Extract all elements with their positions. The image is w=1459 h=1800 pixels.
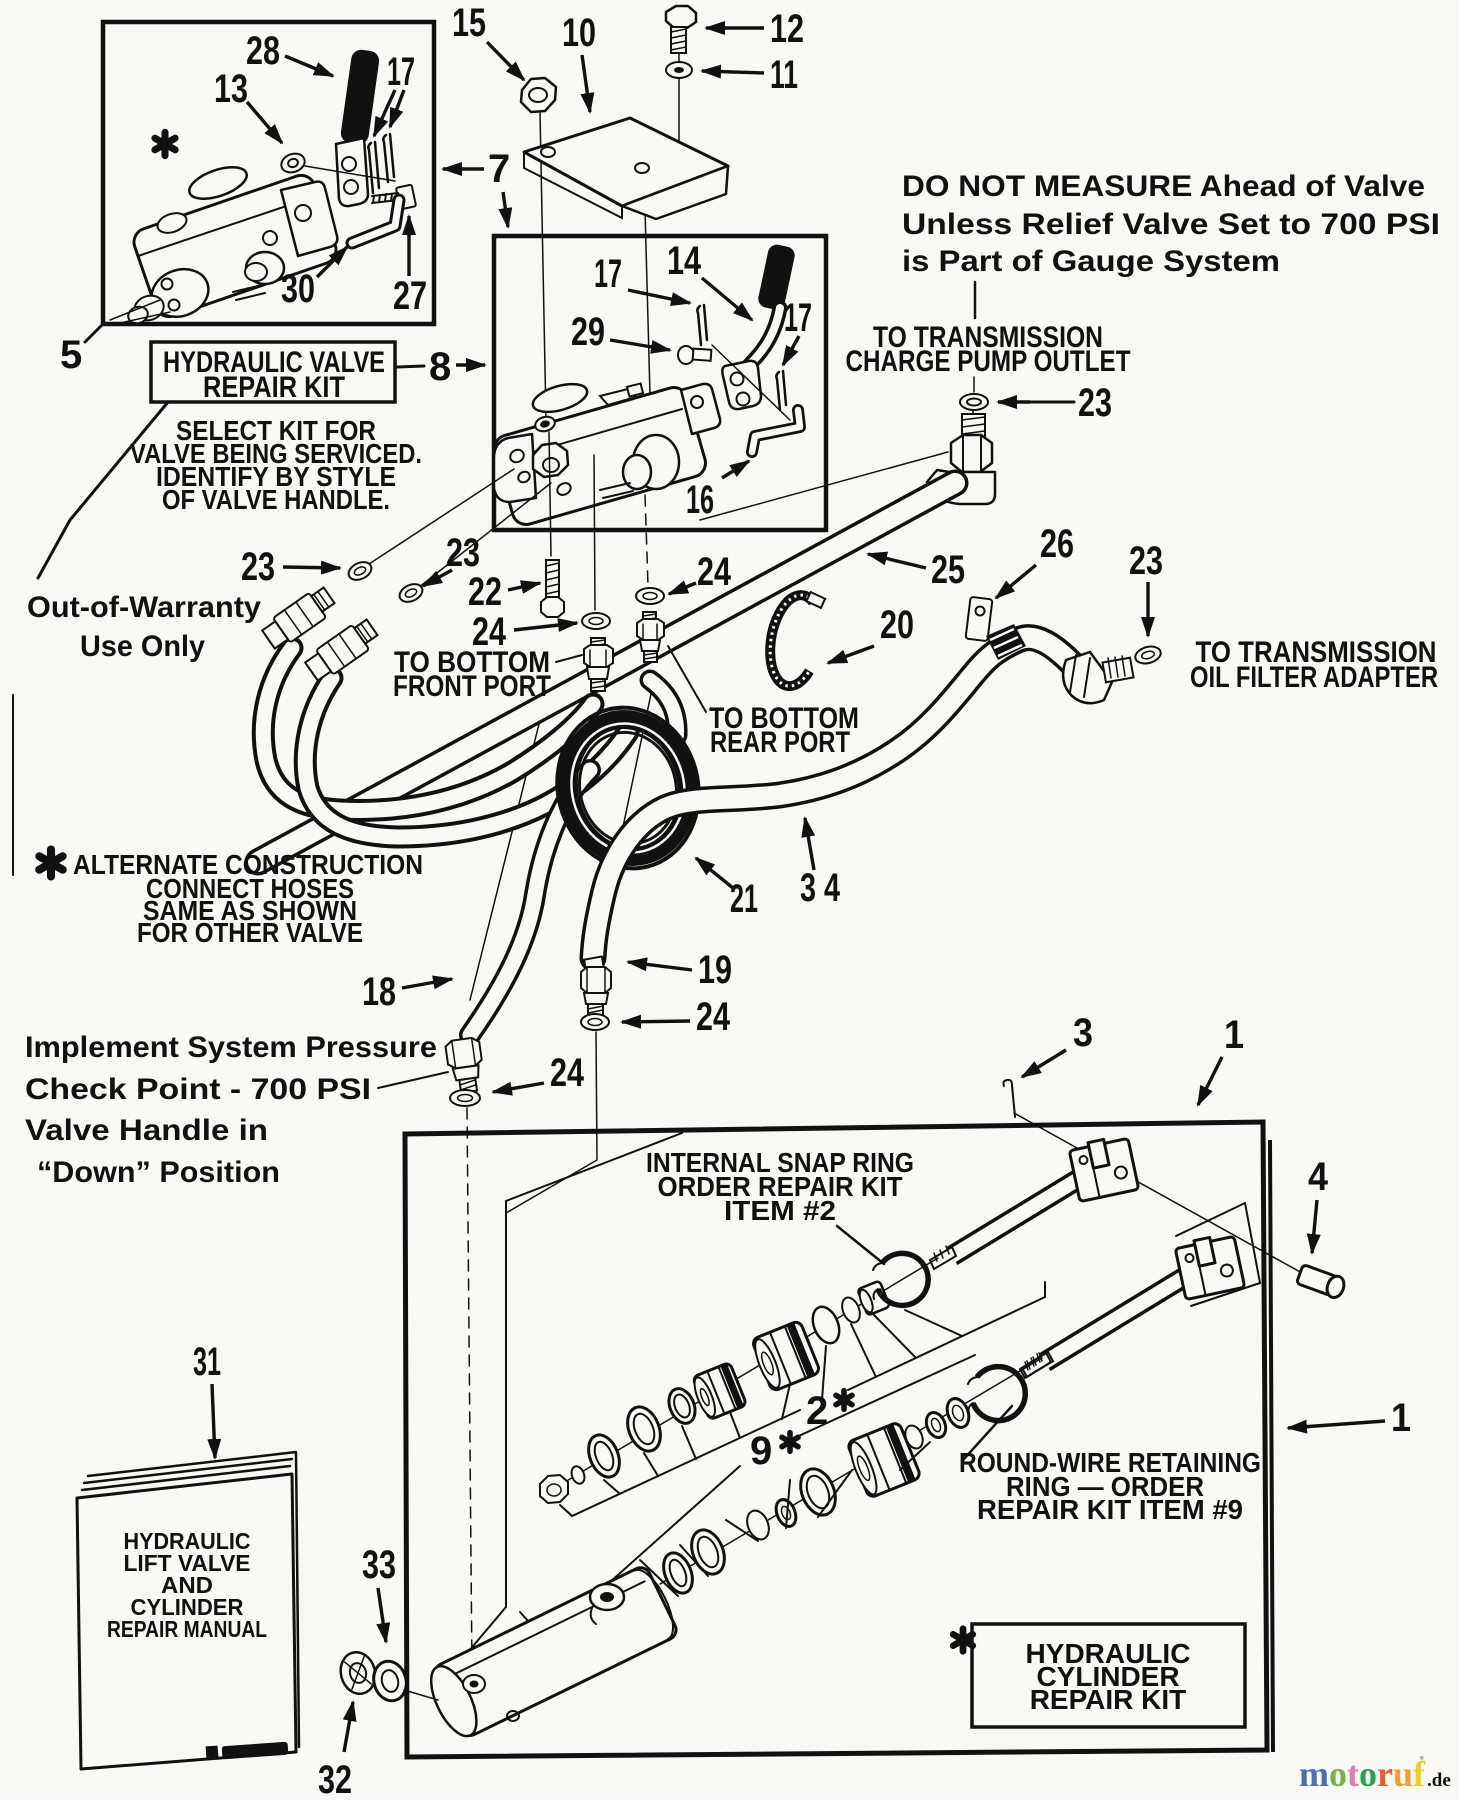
svg-text:29: 29 xyxy=(571,310,605,354)
svg-text:17: 17 xyxy=(387,50,415,94)
svg-text:23: 23 xyxy=(1078,381,1112,425)
svg-text:CHARGE PUMP OUTLET: CHARGE PUMP OUTLET xyxy=(846,345,1131,378)
svg-text:15: 15 xyxy=(452,1,486,45)
svg-text:motoruf: motoruf xyxy=(1299,1754,1426,1794)
svg-text:3 4: 3 4 xyxy=(800,866,841,910)
svg-text:17: 17 xyxy=(594,252,622,296)
svg-text:26: 26 xyxy=(1040,522,1074,566)
svg-text:33: 33 xyxy=(362,1543,396,1587)
svg-text:32: 32 xyxy=(318,1758,352,1800)
svg-text:OIL FILTER ADAPTER: OIL FILTER ADAPTER xyxy=(1190,661,1438,694)
svg-text:3: 3 xyxy=(1073,1011,1093,1055)
svg-text:5: 5 xyxy=(60,333,82,377)
svg-text:19: 19 xyxy=(698,948,732,992)
svg-text:8: 8 xyxy=(429,345,451,389)
svg-text:REPAIR KIT ITEM #9: REPAIR KIT ITEM #9 xyxy=(977,1494,1243,1525)
svg-text:14: 14 xyxy=(667,239,702,283)
svg-text:12: 12 xyxy=(770,7,804,51)
svg-text:21: 21 xyxy=(730,877,758,921)
svg-text:9: 9 xyxy=(750,1429,772,1473)
svg-text:23: 23 xyxy=(1129,539,1163,583)
svg-text:31: 31 xyxy=(193,1340,221,1384)
svg-text:DO NOT MEASURE Ahead of Valve: DO NOT MEASURE Ahead of Valve xyxy=(902,170,1425,203)
svg-text:30: 30 xyxy=(281,267,315,311)
svg-text:17: 17 xyxy=(784,296,812,340)
svg-text:FOR OTHER VALVE: FOR OTHER VALVE xyxy=(137,917,363,948)
svg-text:Unless Relief Valve Set to 700: Unless Relief Valve Set to 700 PSI xyxy=(902,208,1440,241)
svg-text:.de: .de xyxy=(1427,1770,1451,1791)
svg-text:23: 23 xyxy=(241,545,275,589)
svg-text:OF VALVE HANDLE.: OF VALVE HANDLE. xyxy=(162,484,390,515)
svg-text:20: 20 xyxy=(880,603,914,647)
svg-text:23: 23 xyxy=(446,531,480,575)
svg-text:Implement System Pressure: Implement System Pressure xyxy=(25,1031,437,1064)
svg-text:13: 13 xyxy=(214,67,248,111)
svg-text:REPAIR MANUAL: REPAIR MANUAL xyxy=(107,1616,267,1642)
svg-text:REPAIR KIT: REPAIR KIT xyxy=(203,371,345,404)
svg-text:28: 28 xyxy=(246,29,280,73)
svg-text:Valve Handle in: Valve Handle in xyxy=(25,1114,268,1147)
svg-text:24: 24 xyxy=(550,1051,585,1095)
svg-text:FRONT PORT: FRONT PORT xyxy=(393,670,551,703)
svg-text:REPAIR KIT: REPAIR KIT xyxy=(1030,1684,1187,1715)
svg-text:Out-of-Warranty: Out-of-Warranty xyxy=(27,591,261,624)
svg-text:16: 16 xyxy=(686,478,714,522)
svg-text:7: 7 xyxy=(488,147,510,191)
svg-text:1: 1 xyxy=(1391,1396,1411,1440)
svg-text:25: 25 xyxy=(931,548,965,592)
svg-text:REAR PORT: REAR PORT xyxy=(710,726,850,759)
svg-text:Check Point - 700 PSI: Check Point - 700 PSI xyxy=(25,1073,371,1106)
svg-text:18: 18 xyxy=(362,970,396,1014)
svg-text:24: 24 xyxy=(697,550,732,594)
svg-text:Use Only: Use Only xyxy=(80,630,205,663)
svg-text:10: 10 xyxy=(562,11,596,55)
svg-text:“Down” Position: “Down” Position xyxy=(37,1156,280,1189)
svg-text:is Part of Gauge System: is Part of Gauge System xyxy=(902,245,1280,278)
svg-text:4: 4 xyxy=(1308,1155,1329,1199)
svg-text:22: 22 xyxy=(468,570,502,614)
svg-text:27: 27 xyxy=(393,274,427,318)
svg-text:ITEM #2: ITEM #2 xyxy=(724,1195,836,1226)
svg-text:2: 2 xyxy=(806,1389,828,1433)
svg-text:1: 1 xyxy=(1224,1013,1244,1057)
svg-text:24: 24 xyxy=(696,995,731,1039)
svg-text:11: 11 xyxy=(770,53,798,97)
